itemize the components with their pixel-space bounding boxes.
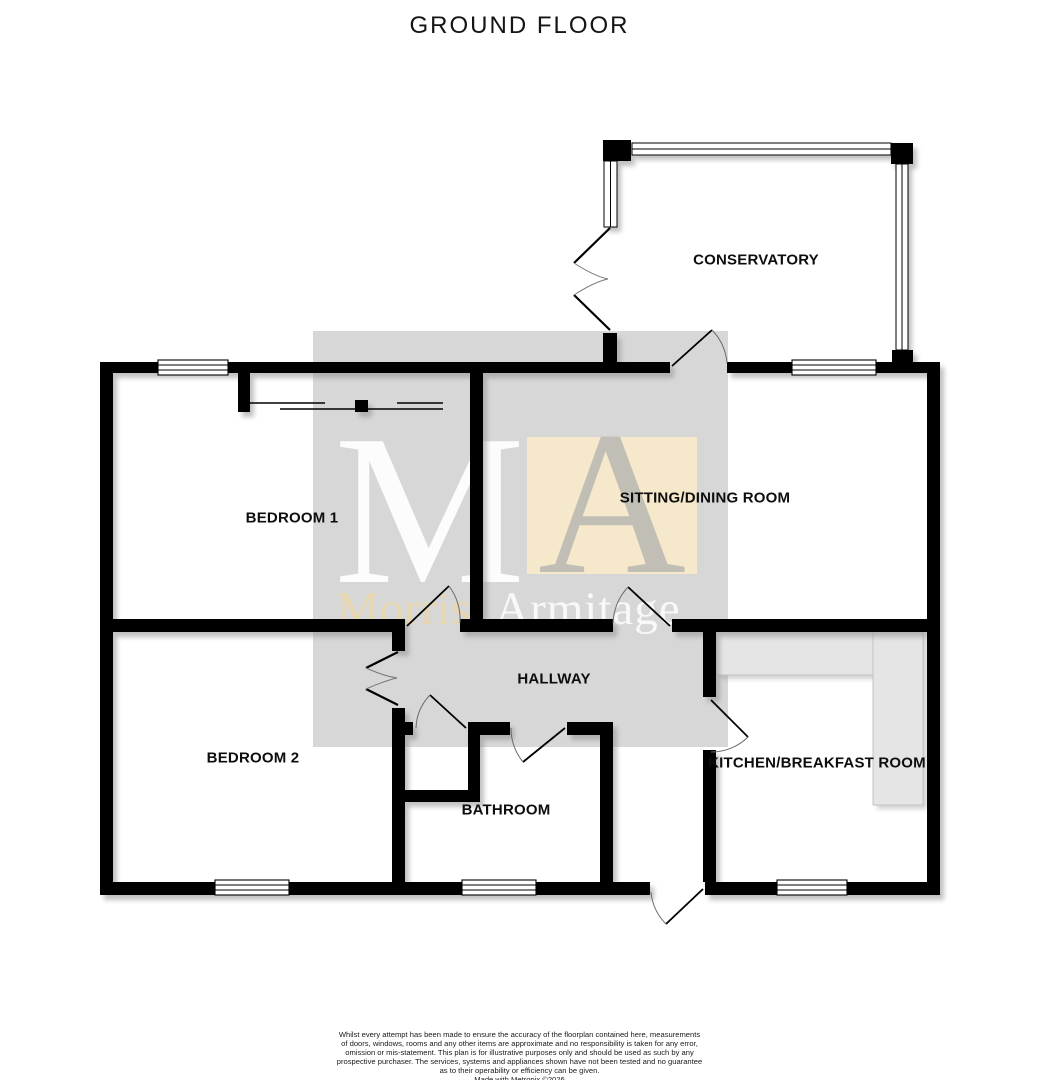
window-bathroom: [462, 880, 536, 895]
door-back: [651, 889, 703, 924]
conservatory-glass-walls: [604, 143, 908, 350]
disclaimer-line: as to their operability or efficiency ca…: [0, 1066, 1039, 1075]
window-sitting: [792, 360, 876, 375]
window-bedroom2: [215, 880, 289, 895]
kitchen-counter: [716, 630, 927, 809]
room-label-bedroom2: BEDROOM 2: [207, 750, 300, 767]
disclaimer: Whilst every attempt has been made to en…: [0, 1030, 1039, 1080]
room-label-bedroom1: BEDROOM 1: [246, 510, 339, 527]
disclaimer-line: Whilst every attempt has been made to en…: [0, 1030, 1039, 1039]
window-kitchen: [777, 880, 847, 895]
room-label-kitchen: KITCHEN/BREAKFAST ROOM: [708, 755, 926, 772]
opening-conservatory: [574, 228, 610, 330]
disclaimer-line: omission or mis-statement. This plan is …: [0, 1048, 1039, 1057]
room-label-sitting-dining: SITTING/DINING ROOM: [620, 490, 790, 507]
room-label-conservatory: CONSERVATORY: [693, 252, 819, 269]
disclaimer-line: prospective purchaser. The services, sys…: [0, 1057, 1039, 1066]
floorplan-page: GROUND FLOOR M A Morris Armitage: [0, 0, 1039, 1080]
floorplan-svg: M A Morris Armitage: [0, 0, 1039, 1080]
disclaimer-line: of doors, windows, rooms and any other i…: [0, 1039, 1039, 1048]
room-label-bathroom: BATHROOM: [462, 802, 551, 819]
window-bedroom1: [158, 360, 228, 375]
disclaimer-credit: Made with Metropix ©2026: [0, 1075, 1039, 1080]
room-label-hallway: HALLWAY: [517, 671, 590, 688]
